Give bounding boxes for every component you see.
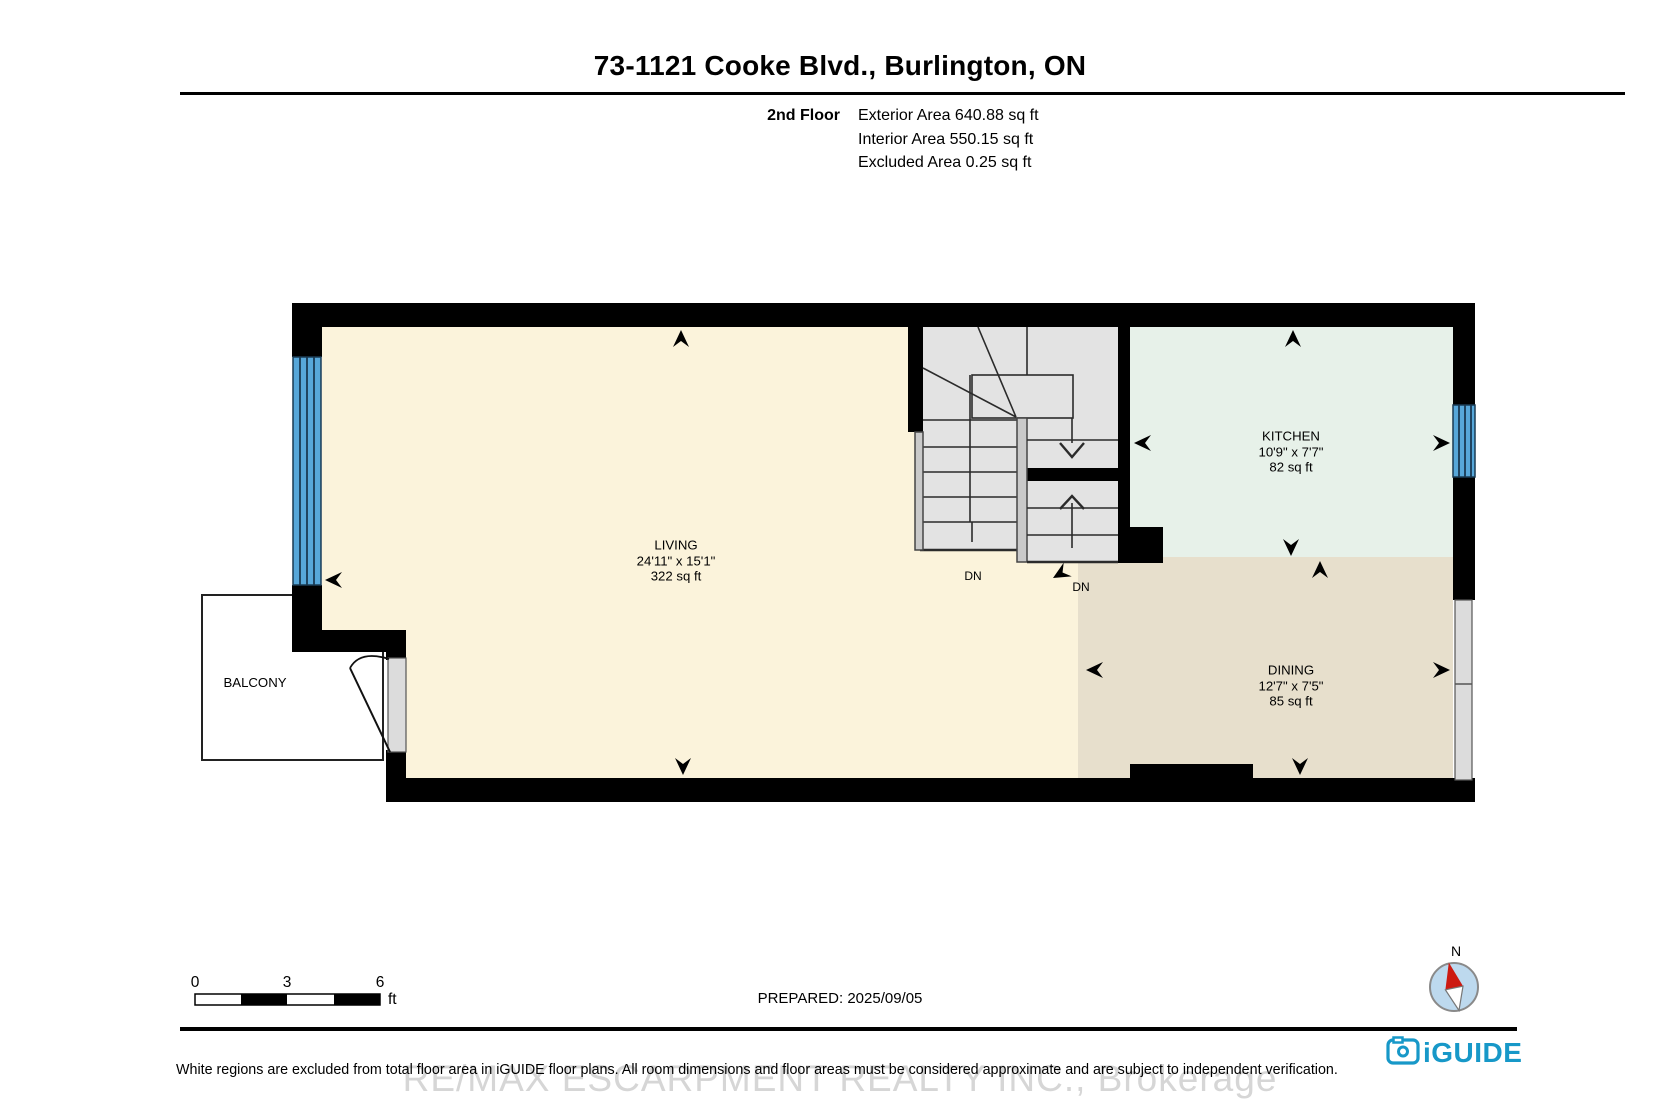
wall-dining-notch (1130, 764, 1253, 784)
wall-stair-left-stub (908, 303, 923, 432)
balcony-door-leaf (388, 658, 406, 752)
kitchen-dimensions: 10'9" x 7'7" (1259, 444, 1324, 460)
wall-kitchen-left-foot (1118, 527, 1163, 563)
dining-label: DINING 12'7" x 7'5" 85 sq ft (1259, 663, 1324, 710)
left-window (293, 357, 321, 585)
scale-unit: ft (388, 991, 397, 1009)
scale-tick-0: 0 (191, 974, 200, 992)
dining-area: 85 sq ft (1259, 694, 1324, 710)
stair-dn-label-right: DN (1072, 580, 1089, 594)
area-line-exterior: Exterior Area 640.88 sq ft (858, 104, 1039, 128)
wall-left-corner (292, 303, 322, 357)
area-line-interior: Interior Area 550.15 sq ft (858, 128, 1033, 152)
dining-name: DINING (1259, 663, 1324, 679)
compass-north-label: N (1451, 943, 1461, 959)
wall-left-below-window (292, 585, 322, 652)
floor-label: 2nd Floor (767, 104, 840, 128)
wall-top (292, 303, 1475, 327)
wall-bottom (386, 778, 1475, 802)
balcony-label: BALCONY (223, 675, 286, 691)
living-name: LIVING (637, 538, 716, 554)
living-area: 322 sq ft (637, 569, 716, 585)
prepared-date: PREPARED: 2025/09/05 (758, 990, 923, 1007)
kitchen-label: KITCHEN 10'9" x 7'7" 82 sq ft (1259, 429, 1324, 476)
iguide-logo-icon (1388, 1038, 1418, 1064)
wall-kitchen-left (1118, 327, 1130, 543)
stair-left-rail (915, 432, 923, 550)
wall-right-mid (1453, 477, 1475, 600)
kitchen-window (1453, 405, 1475, 477)
kitchen-name: KITCHEN (1259, 429, 1324, 445)
area-line-excluded: Excluded Area 0.25 sq ft (858, 151, 1031, 175)
iguide-brand-text: iGUIDE (1423, 1037, 1522, 1069)
stair-dn-label-left: DN (964, 569, 981, 583)
footer-disclaimer: White regions are excluded from total fl… (176, 1062, 1338, 1078)
scale-tick-6: 6 (376, 974, 385, 992)
header-rule (180, 92, 1625, 95)
wall-right-upper (1453, 303, 1475, 405)
kitchen-area: 82 sq ft (1259, 460, 1324, 476)
living-dimensions: 24'11" x 15'1" (637, 553, 716, 569)
stair-rail (1017, 418, 1027, 562)
wall-right-bottom-corner (1453, 780, 1475, 802)
floor-areas (322, 327, 1453, 778)
dining-dimensions: 12'7" x 7'5" (1259, 678, 1324, 694)
floor-plan-page: 73-1121 Cooke Blvd., Burlington, ON 2nd … (0, 0, 1680, 1120)
dining-slider (1455, 600, 1472, 780)
wall-balcony-band (322, 630, 406, 652)
scale-bar (195, 994, 380, 1005)
wall-stair-separator (1027, 468, 1118, 481)
page-title: 73-1121 Cooke Blvd., Burlington, ON (594, 50, 1086, 82)
compass-icon (1430, 961, 1478, 1013)
scale-tick-3: 3 (283, 974, 292, 992)
floor-plan-drawing (0, 0, 1680, 1120)
footer-rule (180, 1027, 1517, 1031)
living-label: LIVING 24'11" x 15'1" 322 sq ft (637, 538, 716, 585)
